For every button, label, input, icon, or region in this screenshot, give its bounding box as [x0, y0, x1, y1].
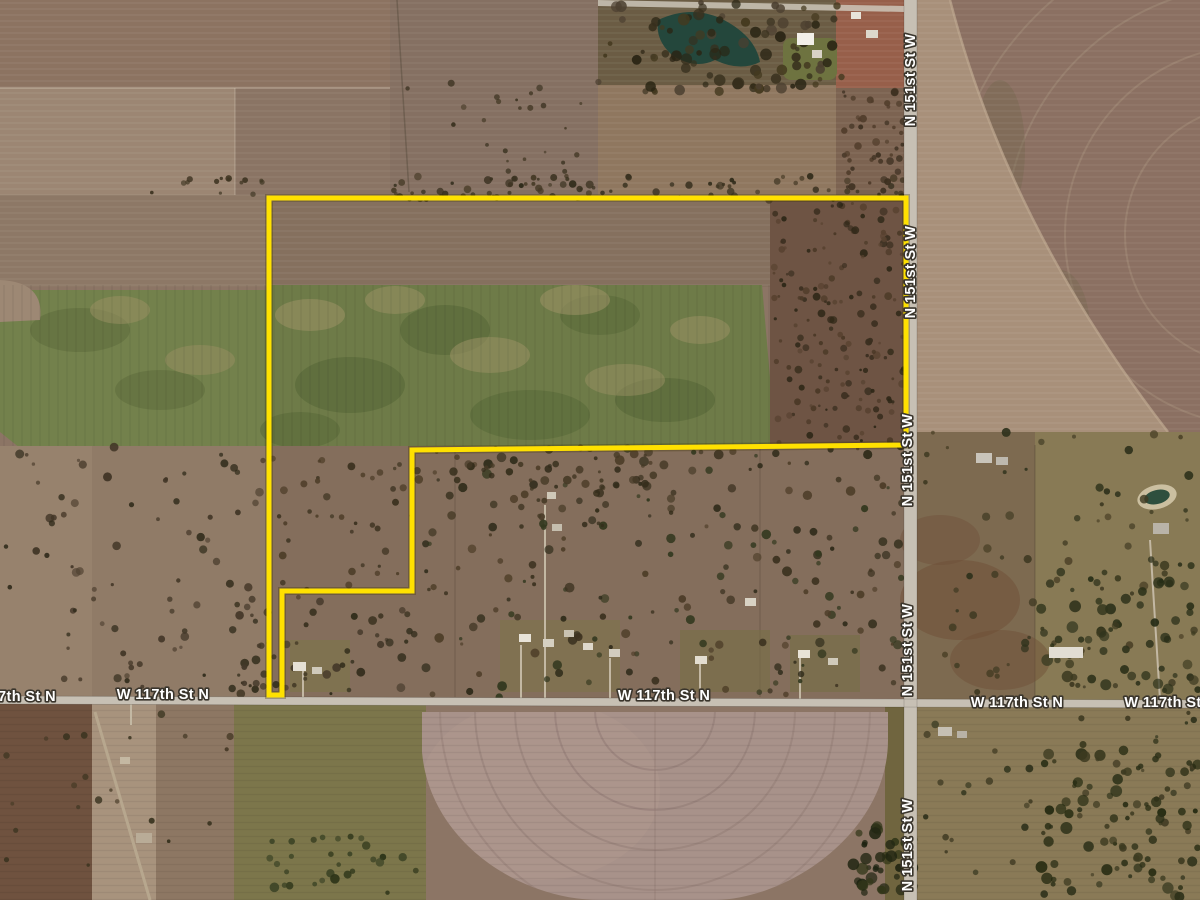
road-label: W 117th St N: [971, 695, 1064, 711]
road-label: 7th St N: [0, 689, 56, 705]
building: [312, 667, 322, 674]
building: [1049, 647, 1083, 658]
building: [1153, 523, 1169, 534]
building: [609, 649, 620, 657]
building: [798, 650, 810, 658]
road-label: W 117th St N: [618, 688, 711, 704]
building: [695, 656, 707, 664]
building: [851, 12, 861, 19]
map-viewport[interactable]: N 151st St WN 151st St WN 151st St WN 15…: [0, 0, 1200, 900]
road-label: N 151st St W: [900, 799, 916, 892]
building: [552, 524, 562, 531]
building: [547, 492, 556, 499]
building: [564, 630, 574, 637]
building: [797, 33, 814, 45]
road-label: N 151st St W: [903, 226, 919, 319]
building: [583, 643, 593, 650]
building: [519, 634, 531, 642]
building: [828, 658, 838, 665]
building: [293, 662, 306, 671]
road-label: N 151st St W: [900, 414, 916, 507]
satellite-map[interactable]: N 151st St WN 151st St WN 151st St WN 15…: [0, 0, 1200, 900]
building: [812, 50, 822, 58]
building: [136, 833, 152, 843]
road-label: W 117th St N: [117, 687, 210, 703]
building: [120, 757, 130, 764]
road-label: W 117th St: [1124, 695, 1200, 711]
building: [957, 731, 967, 738]
building: [543, 639, 554, 647]
green-field: [0, 280, 776, 462]
building: [996, 457, 1008, 465]
road-label: N 151st St W: [903, 34, 919, 127]
road-label: N 151st St W: [900, 604, 916, 697]
building: [938, 727, 952, 736]
building: [976, 453, 992, 463]
building: [866, 30, 878, 38]
building: [745, 598, 756, 606]
